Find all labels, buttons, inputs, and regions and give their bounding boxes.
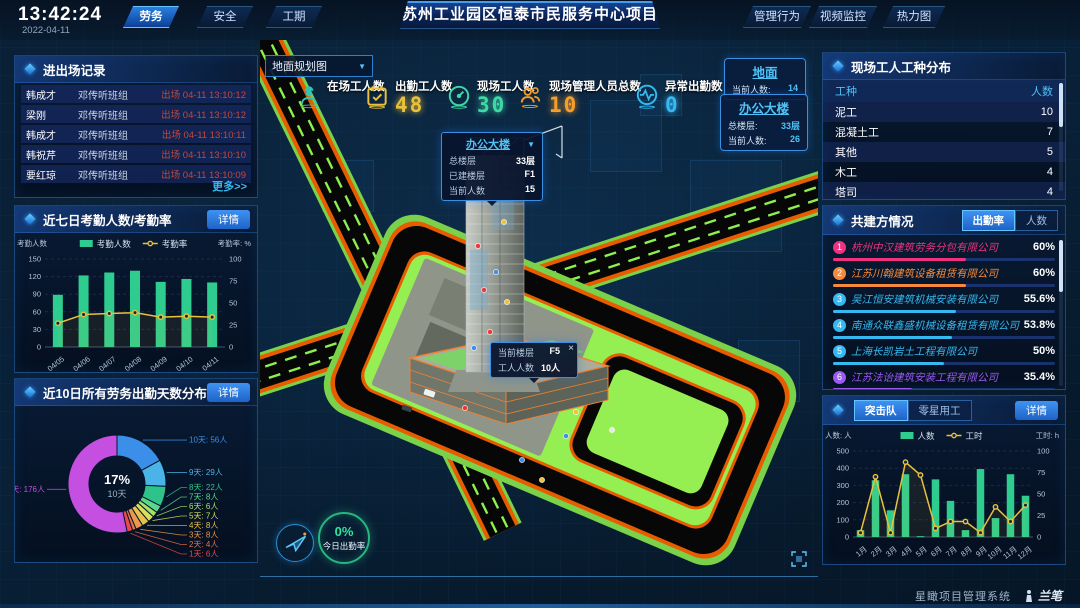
panel-title: 近七日考勤人数/考勤率 xyxy=(43,210,171,229)
svg-text:9天: 29人: 9天: 29人 xyxy=(189,468,223,477)
entry-exit-row: 韩成才 邓传听班组 出场 04-11 13:10:12 xyxy=(21,85,251,103)
svg-text:75: 75 xyxy=(229,277,237,286)
diamond-icon xyxy=(24,386,35,397)
svg-text:200: 200 xyxy=(836,498,849,507)
svg-text:60: 60 xyxy=(33,307,41,316)
svg-text:300: 300 xyxy=(836,481,849,490)
panel-distribution-header: 近10日所有劳务出勤天数分布 详情 xyxy=(15,379,257,406)
attendance-rate-label: 今日出勤率 xyxy=(323,540,366,552)
exit-event: 出场 04-11 13:10:11 xyxy=(162,127,246,141)
detail-button[interactable]: 详情 xyxy=(207,210,250,229)
building-popup[interactable]: 办公大楼 ▼ 总楼层33层 已建楼层F1 当前人数15 xyxy=(441,132,543,201)
svg-text:150: 150 xyxy=(28,255,41,264)
panel-title: 进出场记录 xyxy=(43,60,106,79)
svg-text:75: 75 xyxy=(1037,468,1045,477)
people-icon xyxy=(518,83,544,109)
svg-text:04/09: 04/09 xyxy=(149,354,169,373)
company-name: 吴江恒安建筑机械安装有限公司 xyxy=(851,292,1024,307)
svg-text:12月: 12月 xyxy=(1016,544,1034,561)
panel-worker-types: 现场工人工种分布 工种 人数 泥工10 混凝土工7 其他5 木工4 塔司4 xyxy=(822,52,1066,200)
tab-heatmap[interactable]: 热力图 xyxy=(883,6,945,28)
team-name: 邓传听班组 xyxy=(78,87,161,102)
team-name: 邓传听班组 xyxy=(78,127,162,142)
svg-text:2天: 4人: 2天: 4人 xyxy=(189,540,218,549)
tab-headcount[interactable]: 人数 xyxy=(1015,210,1058,231)
diamond-icon xyxy=(832,404,843,415)
partner-row: 5上海长凯岩土工程有限公司50% xyxy=(833,343,1055,365)
svg-text:400: 400 xyxy=(836,464,849,473)
table-header: 工种 人数 xyxy=(823,80,1065,102)
page-title: 苏州工业园区恒泰市民服务中心项目 xyxy=(400,1,660,29)
progress-fill xyxy=(833,258,966,261)
worker-name: 梁刚 xyxy=(26,107,78,122)
company-name: 上海长凯岩土工程有限公司 xyxy=(851,344,1033,359)
footer: 星瞰项目管理系统 兰笔 xyxy=(915,587,1062,604)
exit-event: 出场 04-11 13:10:12 xyxy=(161,87,246,101)
table-row: 木工4 xyxy=(823,162,1065,182)
svg-text:4月: 4月 xyxy=(899,544,914,558)
fullscreen-icon xyxy=(791,551,807,567)
svg-text:0天: 176人: 0天: 176人 xyxy=(15,485,45,494)
partner-row: 1杭州中汉建筑劳务分包有限公司60% xyxy=(833,239,1055,261)
svg-text:17%: 17% xyxy=(104,472,130,487)
rank-badge: 5 xyxy=(833,345,846,358)
progress-track xyxy=(833,284,1055,287)
diamond-icon xyxy=(832,60,843,71)
company-name: 江苏川翰建筑设备租赁有限公司 xyxy=(851,266,1033,281)
info-row: 当前人数:26 xyxy=(728,134,800,147)
svg-text:2月: 2月 xyxy=(869,544,884,558)
attendance-days-donut: 10天: 56人9天: 29人8天: 22人7天: 8人6天: 6人5天: 7人… xyxy=(15,406,253,562)
svg-text:100: 100 xyxy=(229,255,242,264)
svg-text:1天: 6人: 1天: 6人 xyxy=(189,550,218,559)
fullscreen-button[interactable] xyxy=(791,551,807,572)
svg-text:考勤人数: 考勤人数 xyxy=(17,238,47,248)
pulse-icon xyxy=(634,83,660,109)
bottom-accent xyxy=(0,604,1080,608)
office-building-info-box[interactable]: 办公大楼 总楼层:33层 当前人数:26 xyxy=(720,94,808,151)
svg-text:4天: 8人: 4天: 8人 xyxy=(189,521,218,530)
partner-row: 2江苏川翰建筑设备租赁有限公司60% xyxy=(833,265,1055,287)
svg-text:25: 25 xyxy=(229,321,237,330)
worker-name: 韩成才 xyxy=(26,127,78,142)
rate-value: 50% xyxy=(1033,345,1055,357)
diamond-icon xyxy=(24,213,35,224)
tab-labor[interactable]: 劳务 xyxy=(123,6,179,28)
date: 2022-04-11 xyxy=(22,25,70,36)
svg-text:6月: 6月 xyxy=(929,544,944,558)
rate-value: 53.8% xyxy=(1024,319,1055,331)
calendar-check-icon xyxy=(364,83,390,109)
svg-text:50: 50 xyxy=(1037,490,1045,499)
rate-value: 60% xyxy=(1033,241,1055,253)
scrollbar[interactable] xyxy=(1059,240,1063,386)
panel-title: 近10日所有劳务出勤天数分布 xyxy=(43,383,207,402)
partner-row: 3吴江恒安建筑机械安装有限公司55.6% xyxy=(833,291,1055,313)
panel-attendance-chart: 近七日考勤人数/考勤率 详情 03060901201500255075100考勤… xyxy=(14,205,258,373)
close-icon[interactable]: × xyxy=(568,344,574,354)
company-name: 杭州中汉建筑劳务分包有限公司 xyxy=(851,240,1033,255)
floor-popup[interactable]: × 当前楼层F5 工人人数10人 xyxy=(490,342,578,378)
svg-text:500: 500 xyxy=(836,447,849,456)
svg-text:100: 100 xyxy=(836,515,849,524)
svg-text:考勤率: %: 考勤率: % xyxy=(218,238,252,248)
table-row: 塔司4 xyxy=(823,182,1065,200)
svg-text:50: 50 xyxy=(229,299,237,308)
progress-track xyxy=(833,258,1055,261)
worker-name: 韩成才 xyxy=(26,87,78,102)
detail-button[interactable]: 详情 xyxy=(207,383,250,402)
svg-text:0: 0 xyxy=(229,343,233,352)
svg-text:04/10: 04/10 xyxy=(174,354,194,373)
ground-link[interactable]: 地面 xyxy=(732,62,798,81)
svg-text:3天: 8人: 3天: 8人 xyxy=(189,531,218,540)
tab-video-monitor[interactable]: 视频监控 xyxy=(809,6,877,28)
stat-abnormal-attendance: 异常出勤数0 xyxy=(634,78,723,117)
today-attendance-ring: 0% 今日出勤率 xyxy=(318,512,370,564)
chevron-down-icon[interactable]: ▼ xyxy=(527,140,535,149)
brand-logo: 兰笔 xyxy=(1023,587,1062,604)
table-row: 混凝土工7 xyxy=(823,122,1065,142)
info-row: 总楼层:33层 xyxy=(728,119,800,132)
panel-title: 共建方情况 xyxy=(851,211,914,230)
svg-text:10天: 10天 xyxy=(107,489,126,499)
popup-row: 当前人数15 xyxy=(449,184,535,197)
table-row: 泥工10 xyxy=(823,102,1065,122)
svg-text:人数: 人: 人数: 人 xyxy=(825,430,852,440)
svg-text:5天: 7人: 5天: 7人 xyxy=(189,512,218,521)
progress-track xyxy=(833,362,1055,365)
rank-badge: 6 xyxy=(833,371,846,384)
svg-text:8月: 8月 xyxy=(959,544,974,558)
svg-text:7月: 7月 xyxy=(944,544,959,558)
popup-row: 当前楼层F5 xyxy=(498,346,570,359)
rate-value: 55.6% xyxy=(1024,293,1055,305)
svg-text:工时: h: 工时: h xyxy=(1036,430,1059,440)
progress-track xyxy=(833,388,1055,390)
company-name: 南通众联鑫盛机械设备租赁有限公司 xyxy=(851,318,1024,333)
dashboard: 13:42:24 2022-04-11 劳务 安全 工期 苏州工业园区恒泰市民服… xyxy=(0,0,1080,608)
clock: 13:42:24 xyxy=(18,4,102,26)
partner-row: 6江苏法诒建筑安装工程有限公司35.4% xyxy=(833,369,1055,390)
popup-row: 已建楼层F1 xyxy=(449,169,535,182)
attendance-rate-value: 0% xyxy=(335,524,354,539)
svg-text:工时: 工时 xyxy=(966,431,984,441)
tab-schedule[interactable]: 工期 xyxy=(266,6,322,28)
rank-badge: 1 xyxy=(833,241,846,254)
entry-exit-row: 韩祝芹 邓传听班组 出场 04-11 13:10:10 xyxy=(21,145,251,163)
detail-button[interactable]: 详情 xyxy=(1015,401,1058,420)
panel-worker-types-header: 现场工人工种分布 xyxy=(823,53,1065,80)
progress-track xyxy=(833,310,1055,313)
brand-logo-text: 兰笔 xyxy=(1038,587,1062,604)
navigation-arrow-icon xyxy=(277,525,313,561)
chevron-down-icon: ▼ xyxy=(358,62,366,71)
tab-management-behavior[interactable]: 管理行为 xyxy=(743,6,811,28)
tab-safety[interactable]: 安全 xyxy=(197,6,253,28)
svg-text:7天: 8人: 7天: 8人 xyxy=(189,493,218,502)
worker-icon xyxy=(296,83,322,109)
svg-text:120: 120 xyxy=(28,272,41,281)
stat-site-managers: 现场管理人员总数10 xyxy=(518,78,641,117)
diamond-icon xyxy=(24,63,35,74)
worker-name: 韩祝芹 xyxy=(26,147,78,162)
rate-value: 60% xyxy=(1033,267,1055,279)
panel-squad-header: 突击队 零星用工 详情 xyxy=(823,396,1065,425)
rate-value: 35.4% xyxy=(1024,371,1055,383)
entry-exit-row: 韩成才 邓传听班组 出场 04-11 13:10:11 xyxy=(21,125,251,143)
team-name: 邓传听班组 xyxy=(78,147,161,162)
site-3d-scene[interactable]: 地面规划图 ▼ 在场工人数 出勤工人数48 现场工人数30 现场 xyxy=(260,40,818,577)
svg-text:8天: 22人: 8天: 22人 xyxy=(189,483,223,492)
tab-attendance-rate[interactable]: 出勤率 xyxy=(962,210,1016,231)
progress-fill xyxy=(833,362,944,365)
squad-chart: 01002003004005000255075100人数: 人工时: h人数工时… xyxy=(823,425,1061,563)
scrollbar[interactable] xyxy=(1059,83,1063,191)
column-type: 工种 xyxy=(835,83,1013,99)
diamond-icon xyxy=(832,214,843,225)
svg-text:30: 30 xyxy=(33,325,41,334)
office-building-link[interactable]: 办公大楼 xyxy=(728,98,800,117)
team-name: 邓传听班组 xyxy=(78,107,161,122)
progress-track xyxy=(833,336,1055,339)
svg-text:5月: 5月 xyxy=(914,544,929,558)
svg-text:100: 100 xyxy=(1037,447,1050,456)
brand-logo-icon xyxy=(1023,589,1035,603)
entry-exit-row: 梁刚 邓传听班组 出场 04-11 13:10:12 xyxy=(21,105,251,123)
progress-fill xyxy=(833,310,956,313)
panel-partners: 共建方情况 出勤率 人数 1杭州中汉建筑劳务分包有限公司60% 2江苏川翰建筑设… xyxy=(822,205,1066,390)
svg-text:0: 0 xyxy=(37,343,41,352)
attendance-chart: 03060901201500255075100考勤人数考勤率: %考勤人数考勤率… xyxy=(15,233,253,373)
svg-text:04/08: 04/08 xyxy=(123,354,143,373)
more-link[interactable]: 更多>> xyxy=(212,178,247,194)
svg-text:90: 90 xyxy=(33,290,41,299)
svg-text:考勤人数: 考勤人数 xyxy=(97,239,132,249)
progress-fill xyxy=(833,388,912,390)
svg-text:1月: 1月 xyxy=(854,544,869,558)
rank-badge: 4 xyxy=(833,319,846,332)
svg-text:0: 0 xyxy=(845,533,849,542)
svg-text:人数: 人数 xyxy=(918,431,936,441)
stat-attending-workers: 出勤工人数48 xyxy=(364,78,453,117)
svg-text:0: 0 xyxy=(1037,533,1041,542)
svg-text:04/07: 04/07 xyxy=(97,354,117,373)
panel-entry-exit-header: 进出场记录 xyxy=(15,56,257,83)
view-select-value: 地面规划图 xyxy=(272,58,327,74)
svg-text:04/05: 04/05 xyxy=(46,354,66,373)
panel-entry-exit: 进出场记录 韩成才 邓传听班组 出场 04-11 13:10:12 梁刚 邓传听… xyxy=(14,55,258,198)
column-count: 人数 xyxy=(1013,83,1053,99)
popup-row: 工人人数10人 xyxy=(498,361,570,374)
gauge-icon xyxy=(446,83,472,109)
building-popup-link[interactable]: 办公大楼 xyxy=(449,136,527,152)
exit-event: 出场 04-11 13:10:10 xyxy=(161,147,246,161)
scrollbar-thumb[interactable] xyxy=(1059,83,1063,127)
view-select[interactable]: 地面规划图 ▼ xyxy=(265,55,373,77)
progress-fill xyxy=(833,284,966,287)
tab-casual-labor[interactable]: 零星用工 xyxy=(908,400,972,421)
table-row: 其他5 xyxy=(823,142,1065,162)
worker-name: 要红琼 xyxy=(26,167,78,182)
svg-text:04/11: 04/11 xyxy=(200,354,220,372)
popup-row: 总楼层33层 xyxy=(449,154,535,167)
partner-row: 4南通众联鑫盛机械设备租赁有限公司53.8% xyxy=(833,317,1055,339)
rank-badge: 2 xyxy=(833,267,846,280)
panel-title: 现场工人工种分布 xyxy=(851,57,951,76)
scrollbar-thumb[interactable] xyxy=(1059,240,1063,292)
svg-text:6天: 6人: 6天: 6人 xyxy=(189,502,218,511)
panel-partners-header: 共建方情况 出勤率 人数 xyxy=(823,206,1065,235)
svg-text:3月: 3月 xyxy=(884,544,899,558)
tab-shock-team[interactable]: 突击队 xyxy=(854,400,908,421)
svg-text:10天: 56人: 10天: 56人 xyxy=(189,436,227,445)
panel-squad-chart: 突击队 零星用工 详情 01002003004005000255075100人数… xyxy=(822,395,1066,565)
svg-text:25: 25 xyxy=(1037,511,1045,520)
svg-text:04/06: 04/06 xyxy=(71,354,91,373)
building-popup-title: 办公大楼 ▼ xyxy=(449,136,535,152)
system-name: 星瞰项目管理系统 xyxy=(915,588,1011,604)
team-name: 邓传听班组 xyxy=(78,167,161,182)
progress-fill xyxy=(833,336,952,339)
svg-text:考勤率: 考勤率 xyxy=(162,239,188,249)
rank-badge: 3 xyxy=(833,293,846,306)
compass-control[interactable] xyxy=(276,524,314,562)
panel-attendance-header: 近七日考勤人数/考勤率 详情 xyxy=(15,206,257,233)
panel-attendance-days-distribution: 近10日所有劳务出勤天数分布 详情 10天: 56人9天: 29人8天: 22人… xyxy=(14,378,258,563)
top-bar: 13:42:24 2022-04-11 劳务 安全 工期 苏州工业园区恒泰市民服… xyxy=(0,0,1080,40)
exit-event: 出场 04-11 13:10:12 xyxy=(161,107,246,121)
company-name: 江苏法诒建筑安装工程有限公司 xyxy=(851,370,1024,385)
